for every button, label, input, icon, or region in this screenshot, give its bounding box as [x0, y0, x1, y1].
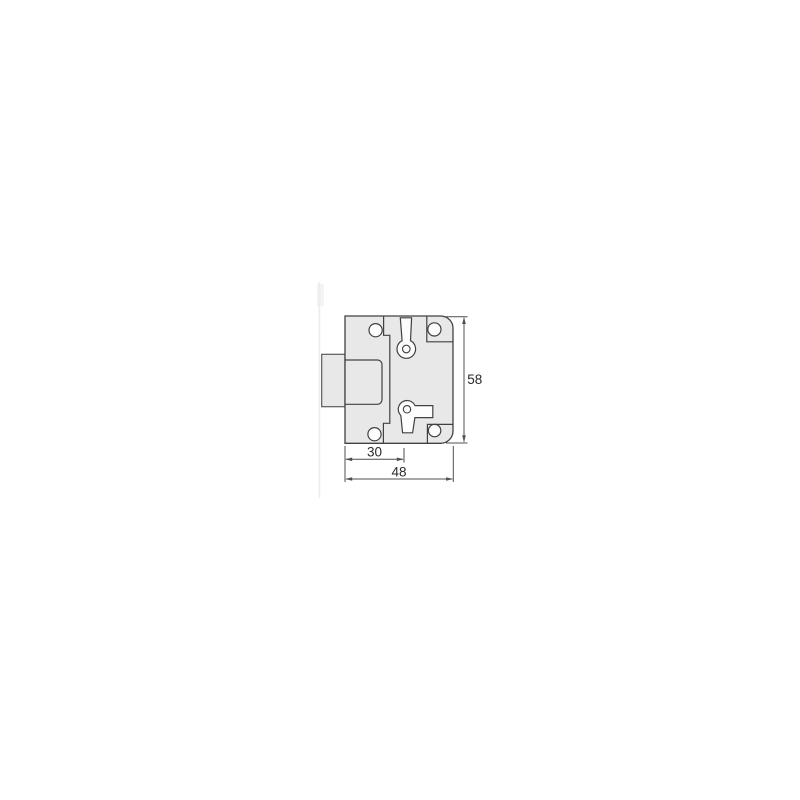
arrowhead-right-icon [446, 477, 453, 481]
arrowhead-down-icon [462, 435, 466, 442]
artifact-line [319, 282, 321, 498]
screw-hole-bottom-left [368, 428, 381, 441]
keyhole-bottom-pin [403, 406, 410, 413]
screw-hole-top-left [369, 324, 382, 337]
arrowhead-up-icon [462, 317, 466, 324]
bolt-head [322, 354, 345, 406]
arrowhead-left-icon [345, 458, 352, 462]
screw-hole-top-right [428, 323, 441, 336]
dimension-label-30: 30 [367, 444, 382, 459]
dimension-label-58: 58 [467, 372, 482, 387]
arrowhead-right-icon [397, 458, 404, 462]
dimension-label-48: 48 [391, 464, 406, 479]
arrowhead-left-icon [345, 477, 352, 481]
screw-hole-bottom-right [428, 424, 440, 436]
lock-technical-drawing: 30 48 58 [0, 0, 800, 800]
page-canvas: 30 48 58 [0, 0, 800, 800]
artifact-smudge [317, 284, 324, 306]
keyhole-top-pin [403, 345, 411, 353]
dimension-width-48: 48 [345, 446, 453, 482]
